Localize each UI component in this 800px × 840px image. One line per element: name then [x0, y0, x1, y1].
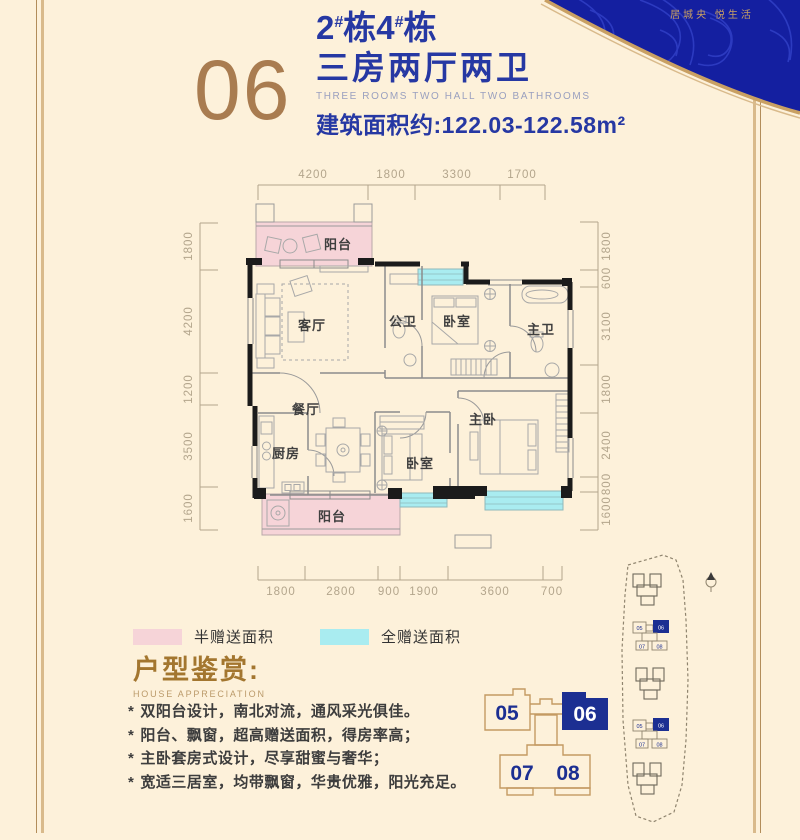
svg-text:3100: 3100 — [601, 311, 613, 341]
svg-text:06: 06 — [658, 724, 664, 730]
tv-bench — [320, 266, 368, 272]
bathtub — [522, 286, 568, 303]
header-block: 2#栋4#栋 三房两厅两卫 THREE ROOMS TWO HALL TWO B… — [316, 10, 656, 140]
area-label: 建筑面积约: — [316, 112, 442, 138]
svg-text:1600: 1600 — [183, 493, 195, 523]
svg-text:08: 08 — [656, 645, 662, 651]
site-plan: 05 06 07 08 05 06 07 08 — [608, 550, 733, 835]
room-label-dining: 餐厅 — [291, 402, 320, 417]
armchair — [290, 276, 312, 297]
frame-line-right-inner — [753, 0, 756, 833]
svg-text:07: 07 — [639, 743, 645, 749]
svg-text:700: 700 — [541, 586, 563, 598]
appreciation-points: *双阳台设计，南北对流，通风采光俱佳。 *阳台、飘窗，超高赠送面积，得房率高； … — [128, 700, 468, 794]
svg-text:05: 05 — [636, 724, 642, 730]
svg-text:900: 900 — [378, 586, 400, 598]
room-label-master-bath: 主卫 — [527, 322, 555, 337]
unit-location-diagram: 05 06 07 08 — [455, 652, 625, 802]
building-cluster-2: 05 06 07 08 — [633, 620, 669, 651]
svg-text:08: 08 — [656, 743, 662, 749]
svg-text:2800: 2800 — [326, 586, 356, 598]
area-value: 122.03-122.58m² — [442, 112, 626, 138]
legend-full-gift-swatch — [320, 629, 369, 645]
full-gift-baywindow-top — [418, 269, 463, 285]
layout-title-en: THREE ROOMS TWO HALL TWO BATHROOMS — [316, 91, 656, 102]
master-bed — [480, 420, 538, 474]
dining-table — [326, 428, 360, 472]
svg-text:3300: 3300 — [442, 169, 472, 181]
door-arcs — [280, 320, 536, 476]
svg-text:1200: 1200 — [183, 374, 195, 404]
floorplan: 4200 1800 3300 1700 1800 4200 1200 3500 … — [170, 148, 650, 618]
appreciation-section: 户型鉴赏: HOUSE APPRECIATION — [133, 648, 266, 699]
building-title: 2#栋4#栋 — [316, 10, 656, 46]
room-label-bedroom-bottom: 卧室 — [406, 456, 434, 471]
unit-06-label: 06 — [573, 703, 596, 726]
layout-title-cn: 三房两厅两卫 — [316, 49, 656, 87]
svg-text:07: 07 — [639, 645, 645, 651]
svg-text:4200: 4200 — [298, 169, 328, 181]
svg-text:600: 600 — [601, 267, 613, 289]
dimension-labels-right: 1800 600 3100 1800 2400 800 1600 — [601, 231, 613, 526]
svg-text:1600: 1600 — [601, 496, 613, 526]
sofa — [256, 294, 265, 358]
svg-text:800: 800 — [601, 473, 613, 495]
unit-number: 06 — [194, 48, 291, 132]
basin — [404, 354, 416, 366]
vanity — [390, 274, 418, 284]
compass-icon — [706, 572, 716, 592]
svg-text:06: 06 — [658, 626, 664, 632]
floorplan-svg: 4200 1800 3300 1700 1800 4200 1200 3500 … — [170, 148, 650, 618]
room-label-living: 客厅 — [298, 318, 326, 333]
room-label-balcony-top: 阳台 — [324, 237, 352, 252]
svg-text:1700: 1700 — [507, 169, 537, 181]
appreciation-point: *宽适三居室，均带飘窗，华贵优雅，阳光充足。 — [128, 771, 468, 795]
room-label-kitchen: 厨房 — [272, 446, 300, 461]
appreciation-point: *阳台、飘窗，超高赠送面积，得房率高； — [128, 724, 468, 748]
svg-text:1800: 1800 — [376, 169, 406, 181]
appreciation-subtitle: HOUSE APPRECIATION — [133, 689, 266, 699]
dimension-labels-bottom: 1800 2800 900 1900 3600 700 — [266, 586, 563, 598]
site-boundary — [622, 555, 688, 822]
appreciation-point: *双阳台设计，南北对流，通风采光俱佳。 — [128, 700, 468, 724]
legend-half-gift-swatch — [133, 629, 182, 645]
svg-text:4200: 4200 — [183, 306, 195, 336]
half-gift-balcony-top — [256, 222, 372, 266]
svg-text:3600: 3600 — [480, 586, 510, 598]
dimension-labels-top: 4200 1800 3300 1700 — [298, 169, 537, 181]
room-label-master: 主卧 — [469, 412, 497, 427]
bench — [470, 432, 478, 460]
svg-text:05: 05 — [636, 626, 642, 632]
master-wardrobe — [556, 394, 569, 452]
floorplan-poster: { "banner": { "tagline": "居城央 悦生活" }, "h… — [0, 0, 800, 833]
svg-text:3500: 3500 — [183, 431, 195, 461]
room-label-public-bath: 公卫 — [389, 314, 417, 329]
svg-text:1900: 1900 — [409, 586, 439, 598]
svg-text:1800: 1800 — [183, 231, 195, 261]
frame-line-left-outer — [36, 0, 37, 833]
unit-08-label: 08 — [556, 762, 580, 785]
room-label-bedroom-top: 卧室 — [443, 314, 471, 329]
appreciation-point: *主卧套房式设计，尽享甜蜜与奢华； — [128, 747, 468, 771]
dimension-labels-left: 1800 4200 1200 3500 1600 — [183, 231, 195, 523]
appreciation-title: 户型鉴赏: — [133, 648, 266, 687]
svg-text:1800: 1800 — [601, 231, 613, 261]
building-footprints — [633, 574, 664, 794]
svg-text:1800: 1800 — [266, 586, 296, 598]
building-cluster-4: 05 06 07 08 — [633, 718, 669, 749]
unit-07-label: 07 — [510, 762, 533, 785]
frame-line-right-outer — [760, 0, 761, 833]
legend-half-gift-label: 半赠送面积 — [194, 626, 274, 647]
svg-text:1800: 1800 — [601, 374, 613, 404]
legend-full-gift-label: 全赠送面积 — [381, 626, 461, 647]
full-gift-baywindow-right — [485, 491, 563, 510]
banner-tagline: 居城央 悦生活 — [670, 8, 754, 21]
area-line: 建筑面积约:122.03-122.58m² — [316, 106, 656, 140]
unit-05-label: 05 — [495, 702, 519, 725]
legend: 半赠送面积 全赠送面积 — [133, 626, 461, 647]
svg-text:2400: 2400 — [601, 430, 613, 460]
room-label-balcony-bottom: 阳台 — [318, 509, 346, 524]
frame-line-left-inner — [41, 0, 44, 833]
